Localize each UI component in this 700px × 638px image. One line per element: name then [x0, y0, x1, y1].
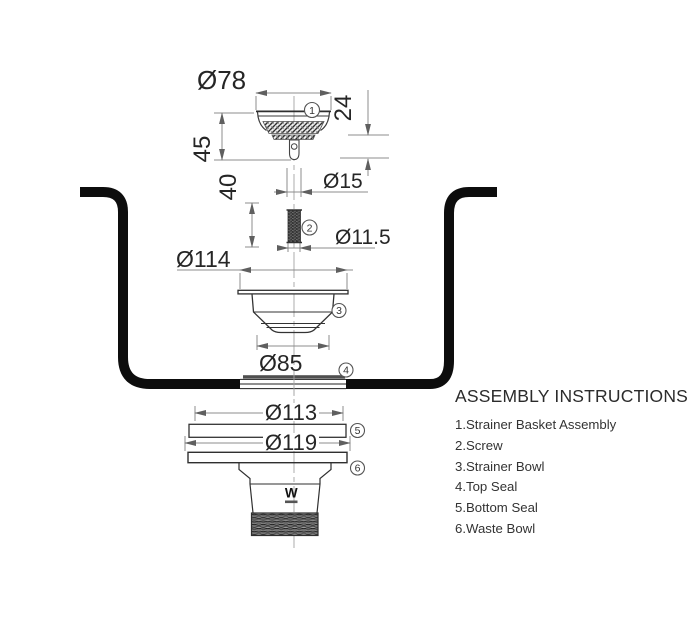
instruction-item-3: 3.Strainer Bowl [455, 457, 690, 478]
dim-basket-height: 45 [189, 136, 216, 163]
assembly-instructions-panel: ASSEMBLY INSTRUCTIONS 1.Strainer Basket … [455, 386, 690, 540]
dim-bowl-bottom-diameter: Ø85 [259, 350, 302, 376]
callout-2-number: 2 [307, 222, 313, 234]
callout-2: 2 [302, 220, 317, 235]
callout-4-number: 4 [343, 365, 349, 377]
strainer-basket-assembly [256, 111, 331, 159]
waste-bowl [188, 452, 347, 535]
instruction-item-1: 1.Strainer Basket Assembly [455, 415, 690, 436]
instruction-item-2: 2.Screw [455, 436, 690, 457]
watermark-logo: W [285, 486, 298, 504]
sink-waste-assembly-diagram: W Ø78 45 24 40 Ø15 Ø11.5 Ø114 Ø85 Ø113 Ø… [0, 0, 700, 638]
dim-screw-diameter: Ø11.5 [335, 226, 391, 249]
callout-3: 3 [332, 304, 346, 318]
callout-6-number: 6 [355, 463, 361, 475]
callout-3-number: 3 [336, 305, 342, 317]
screw [287, 210, 303, 243]
callout-5-number: 5 [355, 425, 361, 437]
callout-6: 6 [351, 461, 365, 475]
dim-screw-length: 40 [215, 174, 242, 201]
callout-1-number: 1 [309, 105, 315, 117]
dim-bowl-flange-diameter: Ø114 [176, 246, 231, 272]
watermark-logo-letter: W [285, 486, 298, 501]
strainer-bowl [238, 290, 348, 332]
instruction-item-4: 4.Top Seal [455, 477, 690, 498]
dim-stem-height: 24 [330, 95, 357, 122]
callout-5: 5 [351, 424, 365, 438]
callout-4: 4 [339, 363, 353, 377]
instruction-item-6: 6.Waste Bowl [455, 519, 690, 540]
dim-waste-flange-diameter: Ø119 [265, 430, 317, 455]
instruction-item-5: 5.Bottom Seal [455, 498, 690, 519]
dim-bottom-seal-diameter: Ø113 [265, 400, 317, 425]
dim-stem-diameter: Ø15 [323, 170, 363, 193]
assembly-instructions-heading: ASSEMBLY INSTRUCTIONS [455, 386, 690, 407]
callout-1: 1 [305, 103, 320, 118]
dim-basket-diameter: Ø78 [197, 65, 246, 95]
technical-drawing: W Ø78 45 24 40 Ø15 Ø11.5 Ø114 Ø85 Ø113 Ø… [0, 0, 700, 638]
